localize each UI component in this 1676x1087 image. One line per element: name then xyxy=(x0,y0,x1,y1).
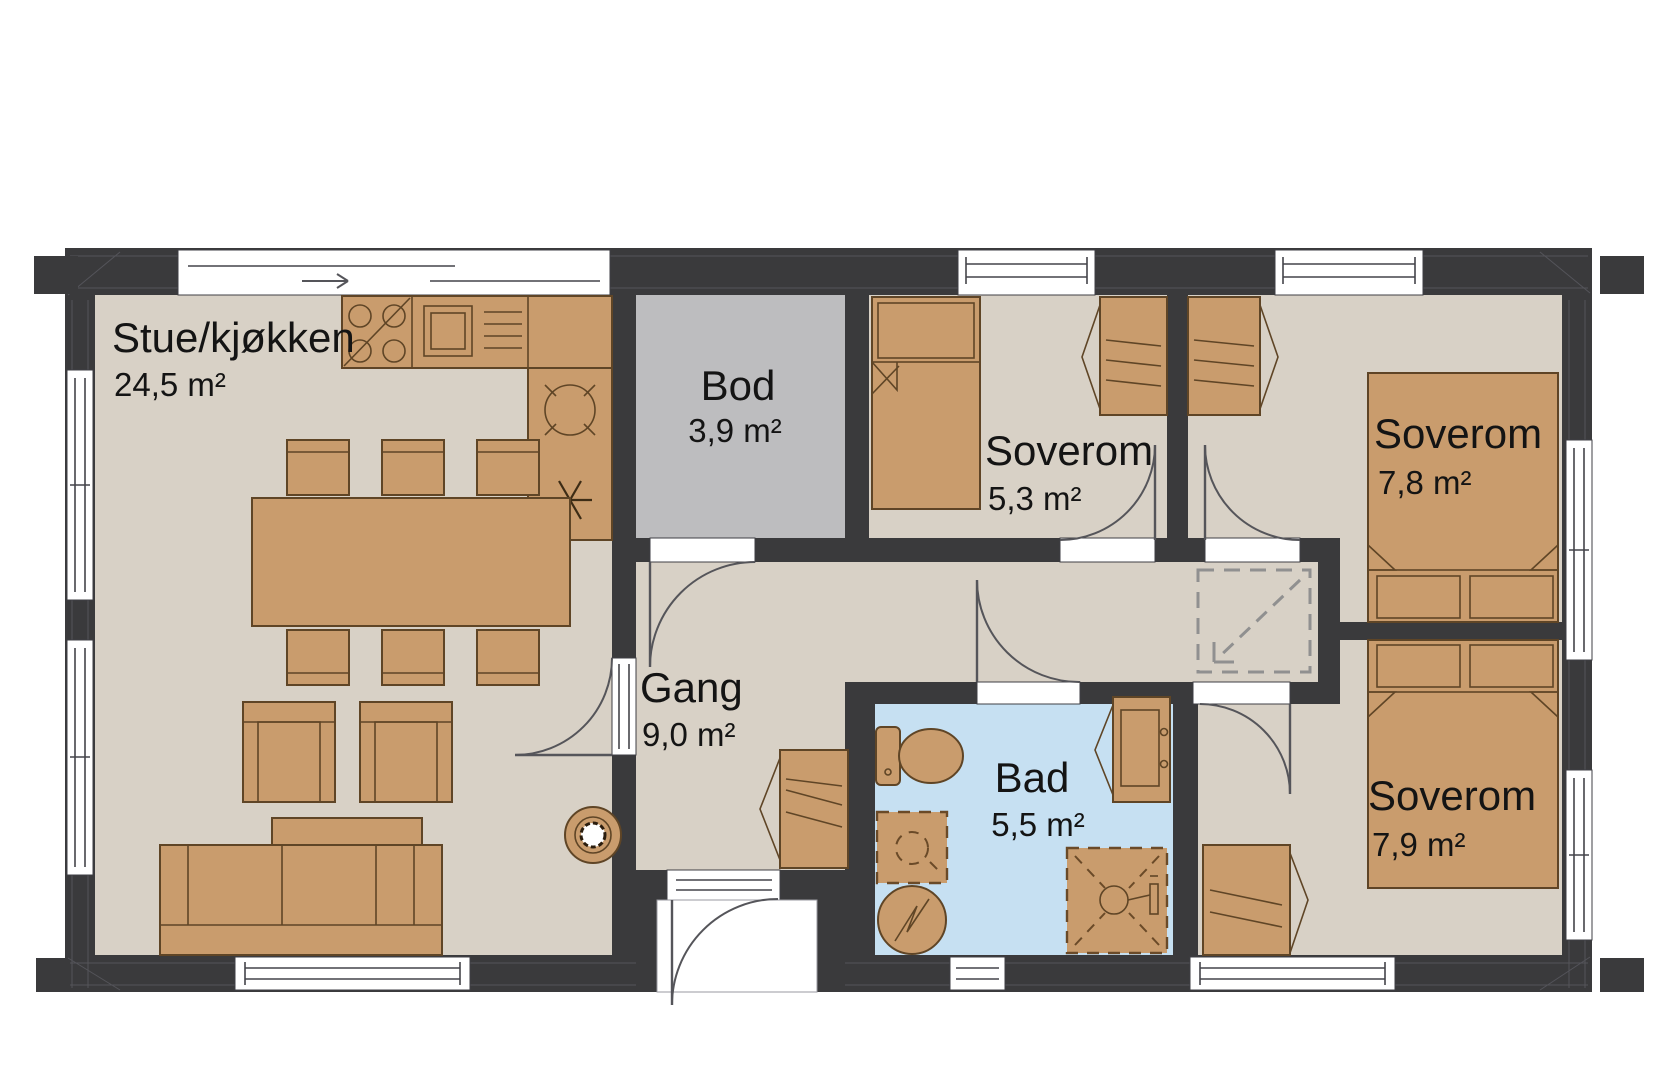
label-bod: Bod xyxy=(701,362,776,409)
washing-machine-icon xyxy=(878,886,946,954)
area-soverom-3: 7,9 m² xyxy=(1372,826,1466,863)
wall-h1-seg3 xyxy=(1155,538,1205,562)
corner-post-top-left xyxy=(34,256,78,294)
window-icon-left-upper xyxy=(67,370,93,600)
wall-soverom2-soverom3 xyxy=(1318,622,1562,640)
door-opening-soverom-2 xyxy=(1205,538,1300,562)
door-opening-soverom-3 xyxy=(1193,682,1290,704)
dining-chair xyxy=(287,440,349,495)
area-bad: 5,5 m² xyxy=(991,806,1085,843)
wall-h1-seg1 xyxy=(636,538,650,562)
dining-chair xyxy=(287,630,349,685)
area-soverom-1: 5,3 m² xyxy=(988,480,1082,517)
wall-porch-right xyxy=(817,900,845,992)
window-icon-bottom-soverom3 xyxy=(1190,957,1395,990)
wall-entry-right xyxy=(780,870,845,900)
corner-post-bottom-left xyxy=(36,958,65,992)
window-icon-top-soverom1 xyxy=(958,250,1095,295)
wall-h2-seg1 xyxy=(875,682,977,704)
wall-bod-soverom1 xyxy=(845,295,869,538)
entrance-porch xyxy=(657,900,817,992)
window-icon-bottom-stue xyxy=(235,957,470,990)
wall-entry-left xyxy=(636,870,667,900)
area-gang: 9,0 m² xyxy=(642,716,736,753)
window-icon-left-lower xyxy=(67,640,93,875)
dining-table xyxy=(252,498,570,626)
door-opening-bad xyxy=(977,682,1080,704)
sliding-door-icon xyxy=(178,250,610,295)
kitchen-counter-top xyxy=(342,296,612,368)
window-icon-bottom-bad xyxy=(950,957,1005,990)
wall-stue-gang-lower xyxy=(612,755,636,955)
label-soverom-2: Soverom xyxy=(1374,410,1542,457)
floor-plan-page: Stue/kjøkken 24,5 m² Bod 3,9 m² Soverom … xyxy=(0,0,1676,1087)
door-opening-entrance xyxy=(667,870,780,900)
label-soverom-3: Soverom xyxy=(1368,772,1536,819)
armchair-icon xyxy=(243,702,335,802)
floor-plan-drawing: Stue/kjøkken 24,5 m² Bod 3,9 m² Soverom … xyxy=(0,0,1676,1087)
wall-bad-left xyxy=(845,682,875,955)
dining-chair xyxy=(477,440,539,495)
area-bod: 3,9 m² xyxy=(688,412,782,449)
dining-table-icon xyxy=(252,440,570,685)
area-stue-kjokken: 24,5 m² xyxy=(114,366,226,403)
door-opening-soverom-1 xyxy=(1060,538,1155,562)
dining-chair xyxy=(477,630,539,685)
armchair-icon xyxy=(360,702,452,802)
corner-post-bottom-right xyxy=(1600,958,1644,992)
toilet-icon xyxy=(876,727,963,785)
wall-porch-left xyxy=(636,900,657,992)
window-icon-interior-stue-gang xyxy=(612,658,636,755)
shower-icon xyxy=(1067,848,1167,953)
dining-chair xyxy=(382,630,444,685)
door-opening-bod xyxy=(650,538,755,562)
wall-h2-seg3 xyxy=(1290,682,1340,704)
wall-stue-bod-gang-upper xyxy=(612,295,636,658)
corner-post-top-right xyxy=(1600,256,1644,294)
label-stue-kjokken: Stue/kjøkken xyxy=(112,314,355,361)
dining-chair xyxy=(382,440,444,495)
window-icon-top-soverom2 xyxy=(1275,250,1423,295)
wall-h1-seg2 xyxy=(755,538,1060,562)
appliance-connection-icon xyxy=(877,812,947,883)
window-icon-right-soverom2 xyxy=(1566,440,1592,660)
wall-bad-right xyxy=(1173,704,1198,955)
label-bad: Bad xyxy=(995,754,1070,801)
label-soverom-1: Soverom xyxy=(985,427,1153,474)
single-bed-icon xyxy=(872,297,980,509)
area-soverom-2: 7,8 m² xyxy=(1378,464,1472,501)
window-icon-right-soverom3 xyxy=(1566,770,1592,940)
sofa-icon xyxy=(160,845,442,955)
wall-h1-seg4 xyxy=(1300,538,1340,562)
wood-stove-icon xyxy=(565,807,621,863)
label-gang: Gang xyxy=(640,664,743,711)
wall-soverom1-soverom2 xyxy=(1167,295,1188,543)
